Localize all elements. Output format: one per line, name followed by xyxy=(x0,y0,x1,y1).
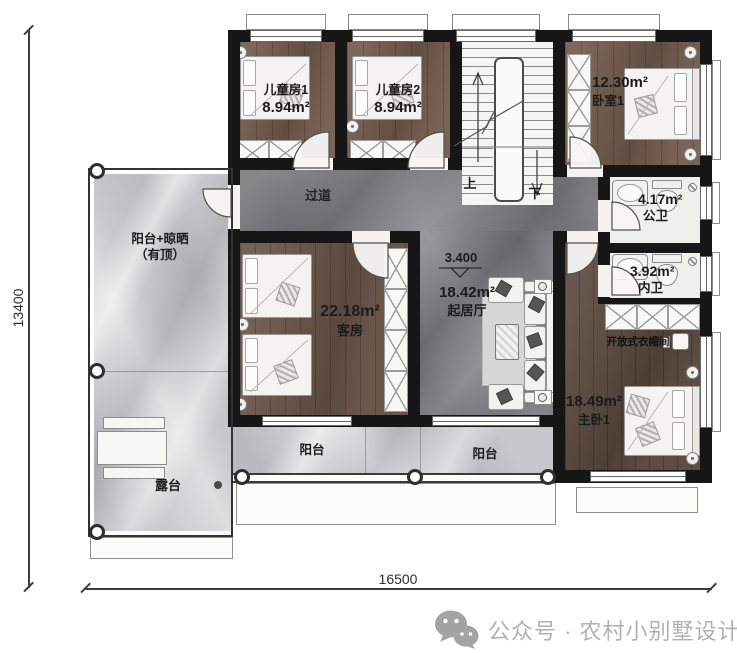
wall-kids2-stairs xyxy=(450,42,462,158)
label-living: 18.42m² 起居厅 xyxy=(430,283,504,319)
window-east-bedroom1 xyxy=(700,64,712,156)
door-opening-kids2 xyxy=(410,158,448,170)
south-balcony-floor xyxy=(233,427,555,473)
dimension-line-left xyxy=(28,30,30,588)
label-corridor: 过道 xyxy=(290,188,346,205)
label-guest: 22.18m² 客房 xyxy=(300,302,400,340)
window-east-master xyxy=(700,336,712,428)
wall-guest-north xyxy=(228,231,420,243)
window-sill xyxy=(348,14,428,30)
dimension-bottom-value: 16500 xyxy=(358,571,438,587)
pillow xyxy=(245,366,258,391)
coffee-table xyxy=(495,324,519,360)
column xyxy=(540,469,556,485)
window-sill xyxy=(452,14,540,30)
dimension-left-value: 13400 xyxy=(10,278,26,338)
headboard xyxy=(692,68,700,140)
balcony-joint-line xyxy=(365,427,366,473)
door-opening-guest xyxy=(352,231,390,243)
headboard xyxy=(692,386,700,456)
window-south-living xyxy=(432,416,540,426)
wardrobe-bedroom1 xyxy=(567,54,591,162)
pillow xyxy=(245,338,258,363)
door-opening-bedroom1 xyxy=(567,165,603,177)
label-balcony-south-2: 阳台 xyxy=(465,446,505,462)
column xyxy=(89,524,105,540)
window-north-kids1 xyxy=(250,30,322,42)
floor-plan-canvas: 儿童房1 8.94m² 儿童房2 8.94m² 12.30m² 卧室1 4.17… xyxy=(0,0,737,653)
label-elevation: 3.400 xyxy=(438,250,484,267)
window-north-stairs xyxy=(456,30,536,42)
label-stairs-up: 上 xyxy=(462,176,478,193)
wall-bath-divider xyxy=(610,243,712,253)
plant-icon xyxy=(686,366,699,379)
pillow xyxy=(672,422,685,450)
window-sill xyxy=(712,252,720,296)
plant-icon xyxy=(686,452,699,465)
label-terrace: 露台 xyxy=(146,478,190,495)
wall-living-master xyxy=(553,243,565,427)
door-opening-public-bath xyxy=(598,200,610,232)
window-east-inner-bath xyxy=(700,256,712,292)
pillow xyxy=(674,106,687,135)
south-balcony-railing xyxy=(233,473,555,483)
plant-icon xyxy=(684,148,697,161)
plant-icon xyxy=(346,120,359,133)
door-opening-inner-bath xyxy=(598,265,610,297)
label-closet: 开放式衣帽间 xyxy=(606,336,670,350)
pillow xyxy=(245,258,258,284)
closet-stool xyxy=(672,333,689,350)
column xyxy=(89,363,105,379)
lamp-icon xyxy=(538,393,547,402)
balcony-joint-line xyxy=(420,427,421,473)
window-sill xyxy=(712,60,721,160)
label-balcony-south-1: 阳台 xyxy=(292,442,332,458)
window-sill xyxy=(246,14,326,30)
column xyxy=(407,469,423,485)
column xyxy=(89,163,105,179)
label-bedroom1: 12.30m² 卧室1 xyxy=(592,73,662,109)
pillow xyxy=(672,390,685,418)
wall-bath-south xyxy=(598,298,712,304)
pillow xyxy=(674,73,687,102)
label-kids2: 儿童房2 8.94m² xyxy=(350,82,446,118)
watermark-text: 公众号 · 农村小别墅设计 xyxy=(488,614,737,646)
door-opening-master xyxy=(567,231,598,243)
label-inner-bath: 3.92m² 内卫 xyxy=(630,262,692,296)
label-kids1: 儿童房1 8.94m² xyxy=(238,82,334,118)
pillow xyxy=(245,288,258,314)
plant-icon xyxy=(684,46,697,59)
window-sill xyxy=(712,332,721,432)
wall-stairs-bedroom1 xyxy=(553,42,565,165)
wall-kids-divider xyxy=(335,42,347,158)
window-east-public-bath xyxy=(700,186,712,220)
porch-roof-outline xyxy=(236,483,556,525)
open-closet xyxy=(605,304,700,330)
wechat-icon xyxy=(432,608,480,652)
label-covered-balcony: 阳台+晾晒 （有顶） xyxy=(110,231,210,264)
window-sill xyxy=(712,182,720,224)
door-opening-kids1 xyxy=(295,158,333,170)
terrace-edge-outline xyxy=(90,537,233,559)
window-south-guest xyxy=(262,416,352,426)
label-stairs-down: 下 xyxy=(527,186,543,203)
label-public-bath: 4.17m² 公卫 xyxy=(638,190,700,224)
wall-guest-living xyxy=(408,243,420,415)
dimension-line-bottom xyxy=(85,588,712,590)
master-sill-outline xyxy=(576,487,698,513)
window-south-master xyxy=(590,471,686,482)
column xyxy=(234,469,250,485)
label-master: 18.49m² 主卧1 xyxy=(566,392,632,428)
window-sill xyxy=(568,14,660,30)
lamp-icon xyxy=(538,282,547,291)
stairs-center-shaft xyxy=(494,57,524,202)
window-north-bedroom1 xyxy=(572,30,656,42)
window-north-kids2 xyxy=(352,30,424,42)
